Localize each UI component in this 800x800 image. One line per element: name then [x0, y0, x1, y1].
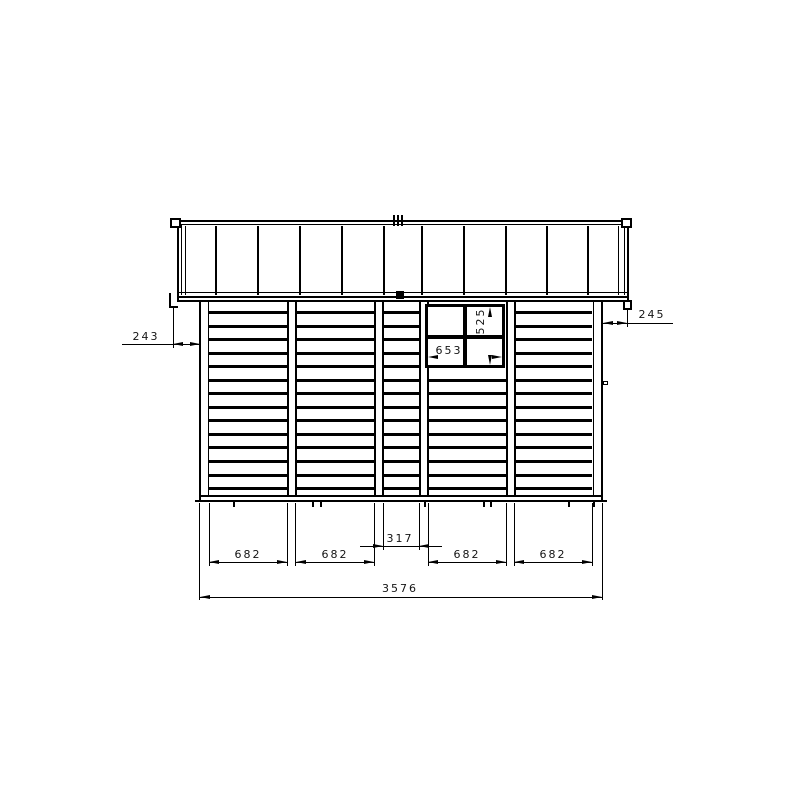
wall-board-gap-line — [209, 311, 287, 314]
wall-board-gap-line — [209, 433, 287, 436]
wall-board-gap-line — [384, 487, 419, 490]
wall-stud-edge — [419, 302, 421, 497]
wall-left-edge — [199, 300, 201, 502]
wall-board-gap-line — [516, 419, 592, 422]
roof-right-edge — [627, 220, 629, 302]
dim-label-bay-1: 682 — [230, 549, 266, 561]
wall-board-gap-line — [384, 446, 419, 449]
wall-board-gap-line — [297, 338, 374, 341]
shed-side-elevation-drawing: 243 245 653 525 682 682 317 682 682 3576 — [0, 0, 800, 800]
bay-dim-extension-line — [209, 503, 210, 566]
roof-panel-divider — [421, 226, 423, 295]
foundation-tick — [424, 502, 426, 507]
gutter-bracket-right — [623, 300, 632, 310]
overhang-right-extension-line — [627, 307, 628, 327]
wall-board-gap-line — [384, 474, 419, 477]
dim-label-window-height: 525 — [475, 303, 487, 339]
wall-board-gap-line — [297, 352, 374, 355]
wall-board-gap-line — [209, 325, 287, 328]
roof-left-inner-line — [181, 224, 182, 295]
window-width-dim-arrow-left — [428, 355, 438, 359]
wall-right-edge-latch-mark — [603, 381, 608, 385]
roof-fascia-top-line — [177, 292, 629, 293]
overhang-left-arrow-b — [190, 342, 200, 346]
bay-dim-arrow-right — [277, 560, 287, 564]
wall-board-gap-line — [297, 311, 374, 314]
wall-board-gap-line — [209, 419, 287, 422]
wall-board-gap-line — [516, 392, 592, 395]
bay-dim-extension-line — [514, 503, 515, 566]
wall-board-gap-line — [516, 460, 592, 463]
wall-board-gap-line — [429, 406, 506, 409]
wall-board-gap-line — [209, 392, 287, 395]
bay-dim-extension-line — [506, 503, 507, 566]
wall-board-gap-line — [516, 487, 592, 490]
roof-panel-divider — [587, 226, 589, 295]
wall-board-gap-line — [209, 379, 287, 382]
wall-corner-post-inner-right — [593, 302, 594, 497]
overhang-left-arrow-a — [173, 342, 183, 346]
wall-board-gap-line — [516, 474, 592, 477]
wall-board-gap-line — [516, 311, 592, 314]
foundation-tick — [483, 502, 485, 507]
bay-dim-arrow-right — [582, 560, 592, 564]
roof-panel-divider — [463, 226, 465, 295]
wall-board-gap-line — [384, 419, 419, 422]
bay-dim-line — [296, 562, 374, 563]
wall-right-edge — [601, 300, 603, 502]
wall-stud-edge — [514, 302, 516, 497]
roof-corner-bracket-left — [170, 218, 181, 228]
roof-top-inner-line — [177, 224, 629, 225]
total-width-arrow-left — [200, 595, 210, 599]
foundation-tick — [312, 502, 314, 507]
wall-board-gap-line — [297, 460, 374, 463]
wall-board-gap-line — [209, 352, 287, 355]
wall-stud-edge — [287, 302, 289, 497]
wall-board-gap-line — [429, 419, 506, 422]
wall-board-gap-line — [297, 379, 374, 382]
roof-panel-divider — [299, 226, 301, 295]
wall-board-gap-line — [429, 392, 506, 395]
wall-stud-edge — [506, 302, 508, 497]
dim-label-bay-4: 682 — [449, 549, 485, 561]
total-width-extension-right — [602, 503, 603, 600]
dim-label-bay-5: 682 — [535, 549, 571, 561]
center-bay-arrow-right — [419, 544, 429, 548]
foundation-tick — [593, 502, 595, 507]
wall-stud-edge — [374, 302, 376, 497]
bay-dim-arrow-left — [296, 560, 306, 564]
overhang-right-arrow-a — [603, 321, 613, 325]
wall-board-gap-line — [384, 338, 419, 341]
foundation-tick — [233, 502, 235, 507]
bay-dim-line — [514, 562, 592, 563]
roof-right-inner-line — [624, 224, 625, 295]
roof-panel-divider — [257, 226, 259, 295]
wall-board-gap-line — [209, 474, 287, 477]
bay-dim-extension-line — [428, 503, 429, 566]
roof-fascia-bottom-line — [177, 300, 629, 302]
roof-top-edge — [177, 220, 629, 222]
center-bay-extension-line — [419, 503, 420, 550]
wall-board-gap-line — [384, 311, 419, 314]
bay-dim-arrow-left — [209, 560, 219, 564]
wall-board-gap-line — [209, 487, 287, 490]
wall-board-gap-line — [384, 392, 419, 395]
foundation-tick — [568, 502, 570, 507]
dim-label-roof-overhang-left: 243 — [128, 331, 164, 343]
base-plate-line — [195, 500, 607, 502]
wall-bottom-rail — [199, 495, 603, 497]
wall-board-gap-line — [516, 433, 592, 436]
roof-end-cap-line-left — [185, 226, 186, 295]
roof-panel-divider — [215, 226, 217, 295]
bay-dim-line — [428, 562, 506, 563]
wall-board-gap-line — [297, 392, 374, 395]
window-height-dim-arrow-bottom — [488, 355, 492, 365]
wall-board-gap-line — [429, 379, 506, 382]
roof-panel-divider — [383, 226, 385, 295]
overhang-left-dim-line — [122, 344, 200, 345]
wall-board-gap-line — [297, 325, 374, 328]
foundation-tick — [490, 502, 492, 507]
total-width-arrow-right — [592, 595, 602, 599]
wall-board-gap-line — [516, 352, 592, 355]
bay-dim-arrow-right — [496, 560, 506, 564]
wall-board-gap-line — [297, 433, 374, 436]
wall-board-gap-line — [209, 460, 287, 463]
bay-dim-line — [209, 562, 287, 563]
wall-board-gap-line — [209, 406, 287, 409]
wall-board-gap-line — [516, 406, 592, 409]
wall-board-gap-line — [384, 325, 419, 328]
bay-dim-arrow-left — [428, 560, 438, 564]
wall-board-gap-line — [516, 365, 592, 368]
wall-board-gap-line — [384, 379, 419, 382]
wall-corner-post-inner-left — [208, 302, 209, 497]
roof-corner-bracket-right — [621, 218, 632, 228]
bay-dim-extension-line — [374, 503, 375, 566]
total-width-dim-line — [200, 597, 602, 598]
window-height-dim-arrow-top — [488, 307, 492, 317]
wall-board-gap-line — [297, 446, 374, 449]
wall-board-gap-line — [429, 460, 506, 463]
wall-board-gap-line — [516, 325, 592, 328]
wall-board-gap-line — [384, 460, 419, 463]
window-width-dim-arrow-right — [492, 355, 502, 359]
roof-end-cap-line-right — [618, 226, 619, 295]
wall-board-gap-line — [297, 419, 374, 422]
roof-panel-divider — [546, 226, 548, 295]
roof-left-edge — [177, 220, 179, 302]
dim-label-total-width: 3576 — [378, 583, 422, 595]
dim-label-bay-2: 682 — [317, 549, 353, 561]
wall-board-gap-line — [429, 446, 506, 449]
gutter-bracket-left — [169, 293, 171, 308]
wall-board-gap-line — [297, 474, 374, 477]
wall-board-gap-line — [429, 487, 506, 490]
wall-board-gap-line — [209, 446, 287, 449]
bay-dim-extension-line — [287, 503, 288, 566]
dim-label-bay-center: 317 — [382, 533, 418, 545]
overhang-right-dim-line — [603, 323, 673, 324]
bay-dim-extension-line — [295, 503, 296, 566]
bay-dim-arrow-left — [514, 560, 524, 564]
roof-panel-divider — [505, 226, 507, 295]
wall-board-gap-line — [429, 474, 506, 477]
window-mullion-horizontal — [428, 335, 502, 339]
overhang-right-arrow-b — [617, 321, 627, 325]
wall-stud-edge — [382, 302, 384, 497]
wall-board-gap-line — [297, 365, 374, 368]
wall-board-gap-line — [209, 338, 287, 341]
roof-panel-divider — [341, 226, 343, 295]
wall-board-gap-line — [429, 433, 506, 436]
center-bay-arrow-left — [373, 544, 383, 548]
bay-dim-arrow-right — [364, 560, 374, 564]
wall-board-gap-line — [384, 365, 419, 368]
foundation-tick — [320, 502, 322, 507]
wall-board-gap-line — [384, 406, 419, 409]
bay-dim-extension-line — [592, 503, 593, 566]
wall-board-gap-line — [516, 446, 592, 449]
wall-board-gap-line — [297, 406, 374, 409]
wall-board-gap-line — [516, 338, 592, 341]
wall-board-gap-line — [516, 379, 592, 382]
wall-board-gap-line — [384, 352, 419, 355]
wall-board-gap-line — [297, 487, 374, 490]
total-width-extension-left — [199, 503, 200, 600]
dim-label-roof-overhang-right: 245 — [634, 309, 670, 321]
wall-board-gap-line — [209, 365, 287, 368]
wall-board-gap-line — [384, 433, 419, 436]
roof-fascia-mid-line — [177, 296, 629, 298]
wall-stud-edge — [295, 302, 297, 497]
